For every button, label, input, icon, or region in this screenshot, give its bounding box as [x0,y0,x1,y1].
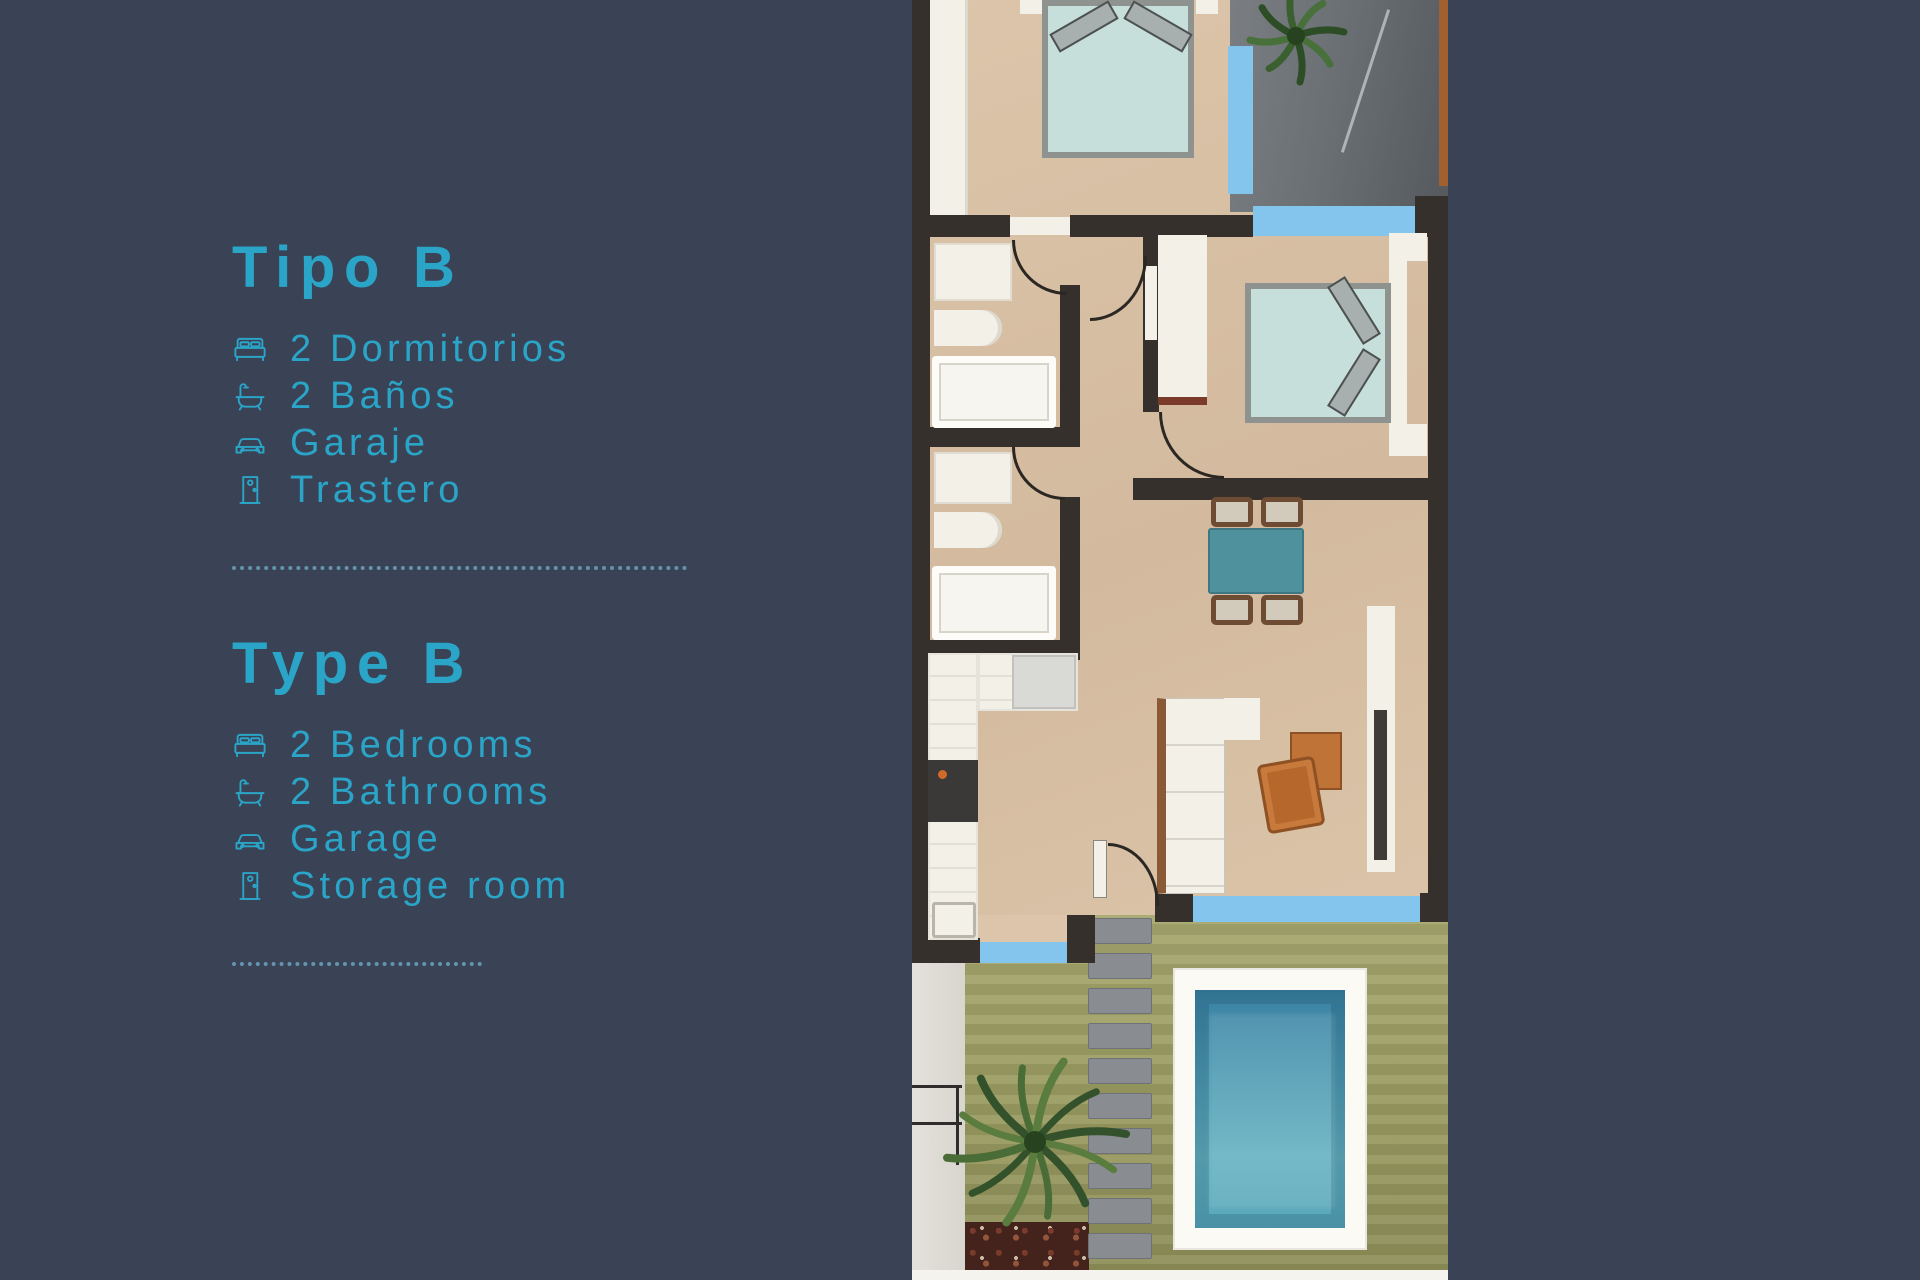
bottom-border-strip [912,1270,1448,1280]
feature-label: Garage [290,818,442,861]
feature-es-bathrooms: 2 Baños [232,373,832,420]
pool-water-highlight [1209,1014,1335,1208]
armchair [1256,755,1325,834]
bathroom1-vanity [934,243,1012,301]
cabinet-slot [1374,710,1387,860]
wall-bathroom2 [1060,497,1080,640]
window-kitchen-bottom [980,942,1067,963]
palm-plant [920,1022,1150,1258]
feature-es-storage: Trastero [232,467,832,514]
wall-living-bottom [1155,893,1193,922]
door-sill [1010,217,1070,235]
feature-list-es: 2 Dormitorios 2 Baños Garaje Trastero [232,326,832,514]
nightstand [1020,0,1042,14]
garden-paver [1088,988,1152,1014]
bed2-headboard [1389,258,1407,446]
terrace-wood-edge [1439,0,1448,186]
wardrobe-bedroom2 [1158,235,1207,405]
bath-icon [232,774,268,810]
window-bedroom2-top [1253,206,1415,236]
car-icon [232,821,268,857]
feature-en-bedrooms: 2 Bedrooms [232,722,832,769]
title-es: Tipo B [232,236,832,300]
window-living-bottom [1193,896,1420,922]
title-en: Type B [232,632,832,696]
feature-label: Trastero [290,469,464,512]
kitchen-stove [928,760,978,822]
wall-bedroom1 [1070,215,1253,237]
feature-label: 2 Bathrooms [290,771,551,814]
feature-en-bathrooms: 2 Bathrooms [232,769,832,816]
swimming-pool [1175,970,1365,1248]
wall-kitchen-bottom [912,938,980,963]
bathroom1-bathtub [932,356,1056,428]
closet-bedroom1 [930,0,968,215]
wall-bedroom1 [930,215,1010,237]
dining-chair [1261,595,1303,625]
entry-door-leaf [1093,840,1107,898]
feature-label: Garaje [290,422,429,465]
terrace-plant [1238,0,1354,100]
garden-paver [1088,953,1152,979]
separator-dotted-2 [232,962,482,966]
door-icon [232,472,268,508]
feature-es-garage: Garaje [232,420,832,467]
garden-paver [1088,918,1152,944]
kitchen-appliance [1012,655,1076,709]
kitchen-sink [932,902,976,938]
wall-bath-divider [930,427,1080,447]
feature-en-garage: Garage [232,816,832,863]
bathroom1-toilet [934,310,1002,346]
dining-chair [1211,497,1253,527]
bed-icon [232,331,268,367]
bathroom2-bathtub [932,566,1056,640]
sofa [1157,698,1225,894]
floor-plan [912,0,1448,1280]
door-icon [232,868,268,904]
info-panel: Tipo B 2 Dormitorios 2 Baños Garaje [232,236,832,966]
bed-icon [232,727,268,763]
feature-en-storage: Storage room [232,863,832,910]
feature-label: 2 Dormitorios [290,328,570,371]
brochure-page: Tipo B 2 Dormitorios 2 Baños Garaje [0,0,1920,1280]
wall-entry [1067,915,1095,963]
door-sill [1145,266,1157,340]
feature-list-en: 2 Bedrooms 2 Bathrooms Garage Storage ro… [232,722,832,910]
bathroom2-toilet [934,512,1002,548]
wall-right [1428,196,1448,922]
feature-label: 2 Bedrooms [290,724,537,767]
wall-bathroom1 [1060,285,1080,443]
wall-corner [1415,196,1448,237]
nightstand [1389,233,1427,261]
bathroom2-vanity [934,452,1012,504]
nightstand [1196,0,1218,14]
dining-table [1208,528,1304,594]
feature-es-bedrooms: 2 Dormitorios [232,326,832,373]
wall-living-bottom [1420,893,1448,922]
dining-chair [1211,595,1253,625]
feature-label: 2 Baños [290,375,459,418]
side-table [1224,698,1260,740]
car-icon [232,425,268,461]
dining-chair [1261,497,1303,527]
bath-icon [232,378,268,414]
feature-label: Storage room [290,865,570,908]
separator-dotted-1 [232,566,687,570]
